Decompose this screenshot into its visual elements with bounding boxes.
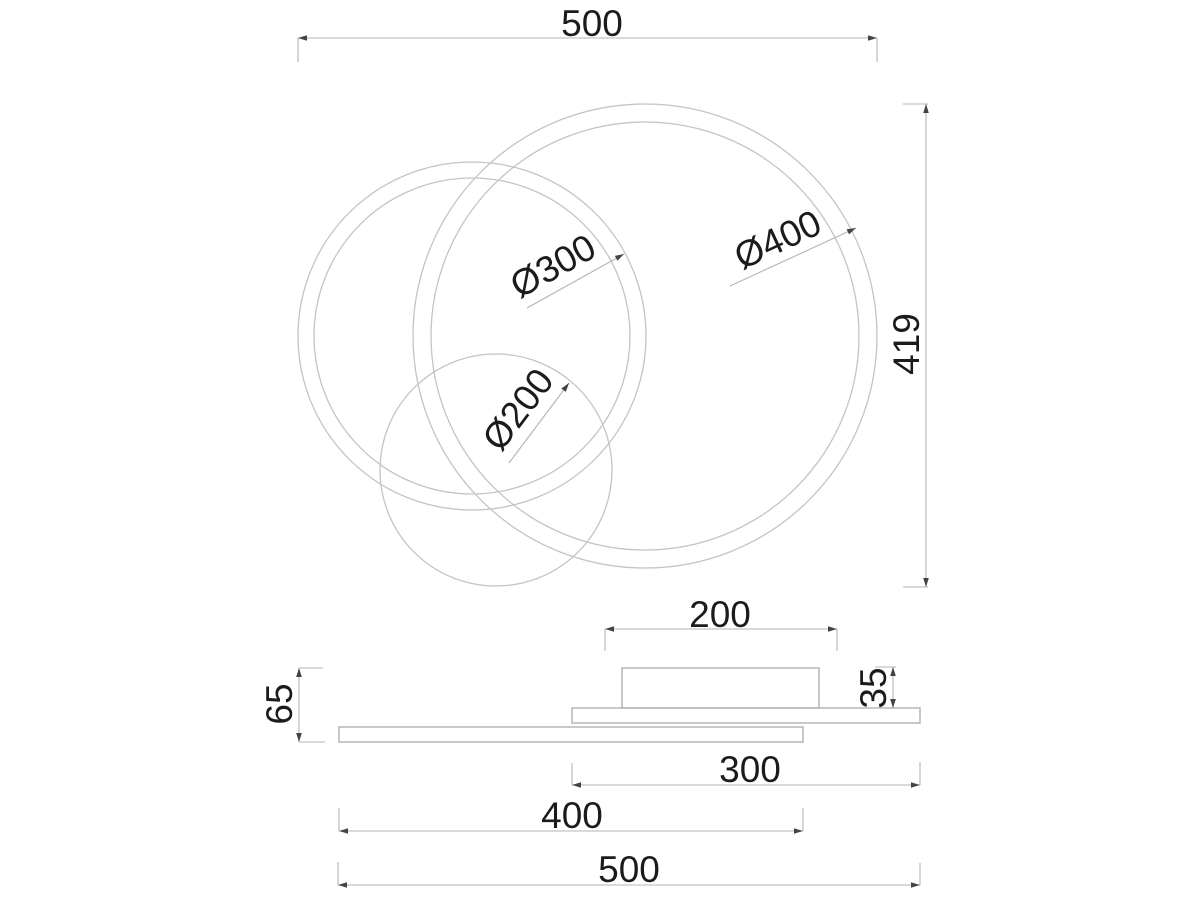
ring-400-outer-circle <box>413 104 877 568</box>
leader-arrow-icon <box>847 225 858 234</box>
ring-200-circle <box>380 354 612 586</box>
plate-300-outline <box>572 708 920 723</box>
dim-label-canopy-height: 35 <box>853 667 894 708</box>
diameter-label-400: Ø400 <box>728 202 827 277</box>
dim-label-side-overall-width: 500 <box>598 849 660 890</box>
ring-300-outer-circle <box>298 162 646 510</box>
top-view: 500 419 Ø300 Ø400 Ø200 <box>298 3 929 587</box>
dim-plate-300-width: 300 <box>572 749 920 790</box>
ring-400-inner-circle <box>431 122 859 550</box>
dim-label-plate-300: 300 <box>719 749 781 790</box>
dim-label-fixture-height: 65 <box>259 683 300 724</box>
arrow-left-icon <box>605 626 614 632</box>
arrow-up-icon <box>296 668 302 677</box>
arrow-left-icon <box>298 35 307 41</box>
dim-right-overall-height: 419 <box>886 104 929 587</box>
dim-label-plate-400: 400 <box>541 795 603 836</box>
arrow-right-icon <box>868 35 877 41</box>
ring-300-inner-circle <box>314 178 630 494</box>
dim-label-top-width: 500 <box>561 3 623 44</box>
leader-arrow-icon <box>561 381 571 392</box>
arrow-down-icon <box>923 578 929 587</box>
leader-ring-300: Ø300 <box>503 226 625 308</box>
dim-label-overall-height: 419 <box>886 313 927 375</box>
arrow-down-icon <box>296 733 302 742</box>
dim-canopy-width: 200 <box>605 594 837 651</box>
side-view: 200 35 65 300 <box>259 594 920 890</box>
dim-fixture-height: 65 <box>259 668 325 742</box>
dim-side-overall-width: 500 <box>338 849 920 890</box>
dim-canopy-height: 35 <box>853 667 896 709</box>
dim-top-overall-width: 500 <box>298 3 877 62</box>
technical-drawing-canvas: 500 419 Ø300 Ø400 Ø200 <box>0 0 1200 900</box>
arrow-left-icon <box>572 782 581 788</box>
plate-400-outline <box>339 727 803 742</box>
leader-arrow-icon <box>615 252 626 261</box>
arrow-right-icon <box>794 828 803 834</box>
arrow-up-icon <box>923 104 929 113</box>
dim-plate-400-width: 400 <box>339 795 803 836</box>
dim-label-canopy-width: 200 <box>689 594 751 635</box>
arrow-right-icon <box>911 782 920 788</box>
dimension-drawing-svg: 500 419 Ø300 Ø400 Ø200 <box>0 0 1200 900</box>
arrow-left-icon <box>338 882 347 888</box>
leader-ring-200: Ø200 <box>474 361 571 463</box>
arrow-left-icon <box>339 828 348 834</box>
arrow-right-icon <box>828 626 837 632</box>
canopy-outline <box>622 668 819 708</box>
arrow-right-icon <box>911 882 920 888</box>
